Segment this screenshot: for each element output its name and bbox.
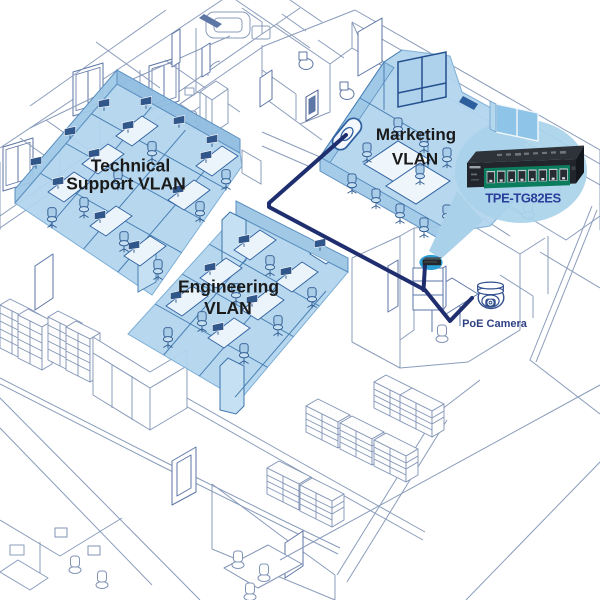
svg-text:VLAN: VLAN: [392, 150, 438, 169]
svg-text:Support VLAN: Support VLAN: [66, 174, 186, 194]
svg-text:TPE-TG82ES: TPE-TG82ES: [485, 191, 561, 206]
svg-text:Marketing: Marketing: [376, 125, 456, 144]
svg-text:Engineering: Engineering: [178, 277, 279, 297]
svg-text:PoE Camera: PoE Camera: [462, 318, 528, 330]
svg-text:VLAN: VLAN: [204, 298, 252, 318]
svg-text:Technical: Technical: [91, 156, 170, 176]
